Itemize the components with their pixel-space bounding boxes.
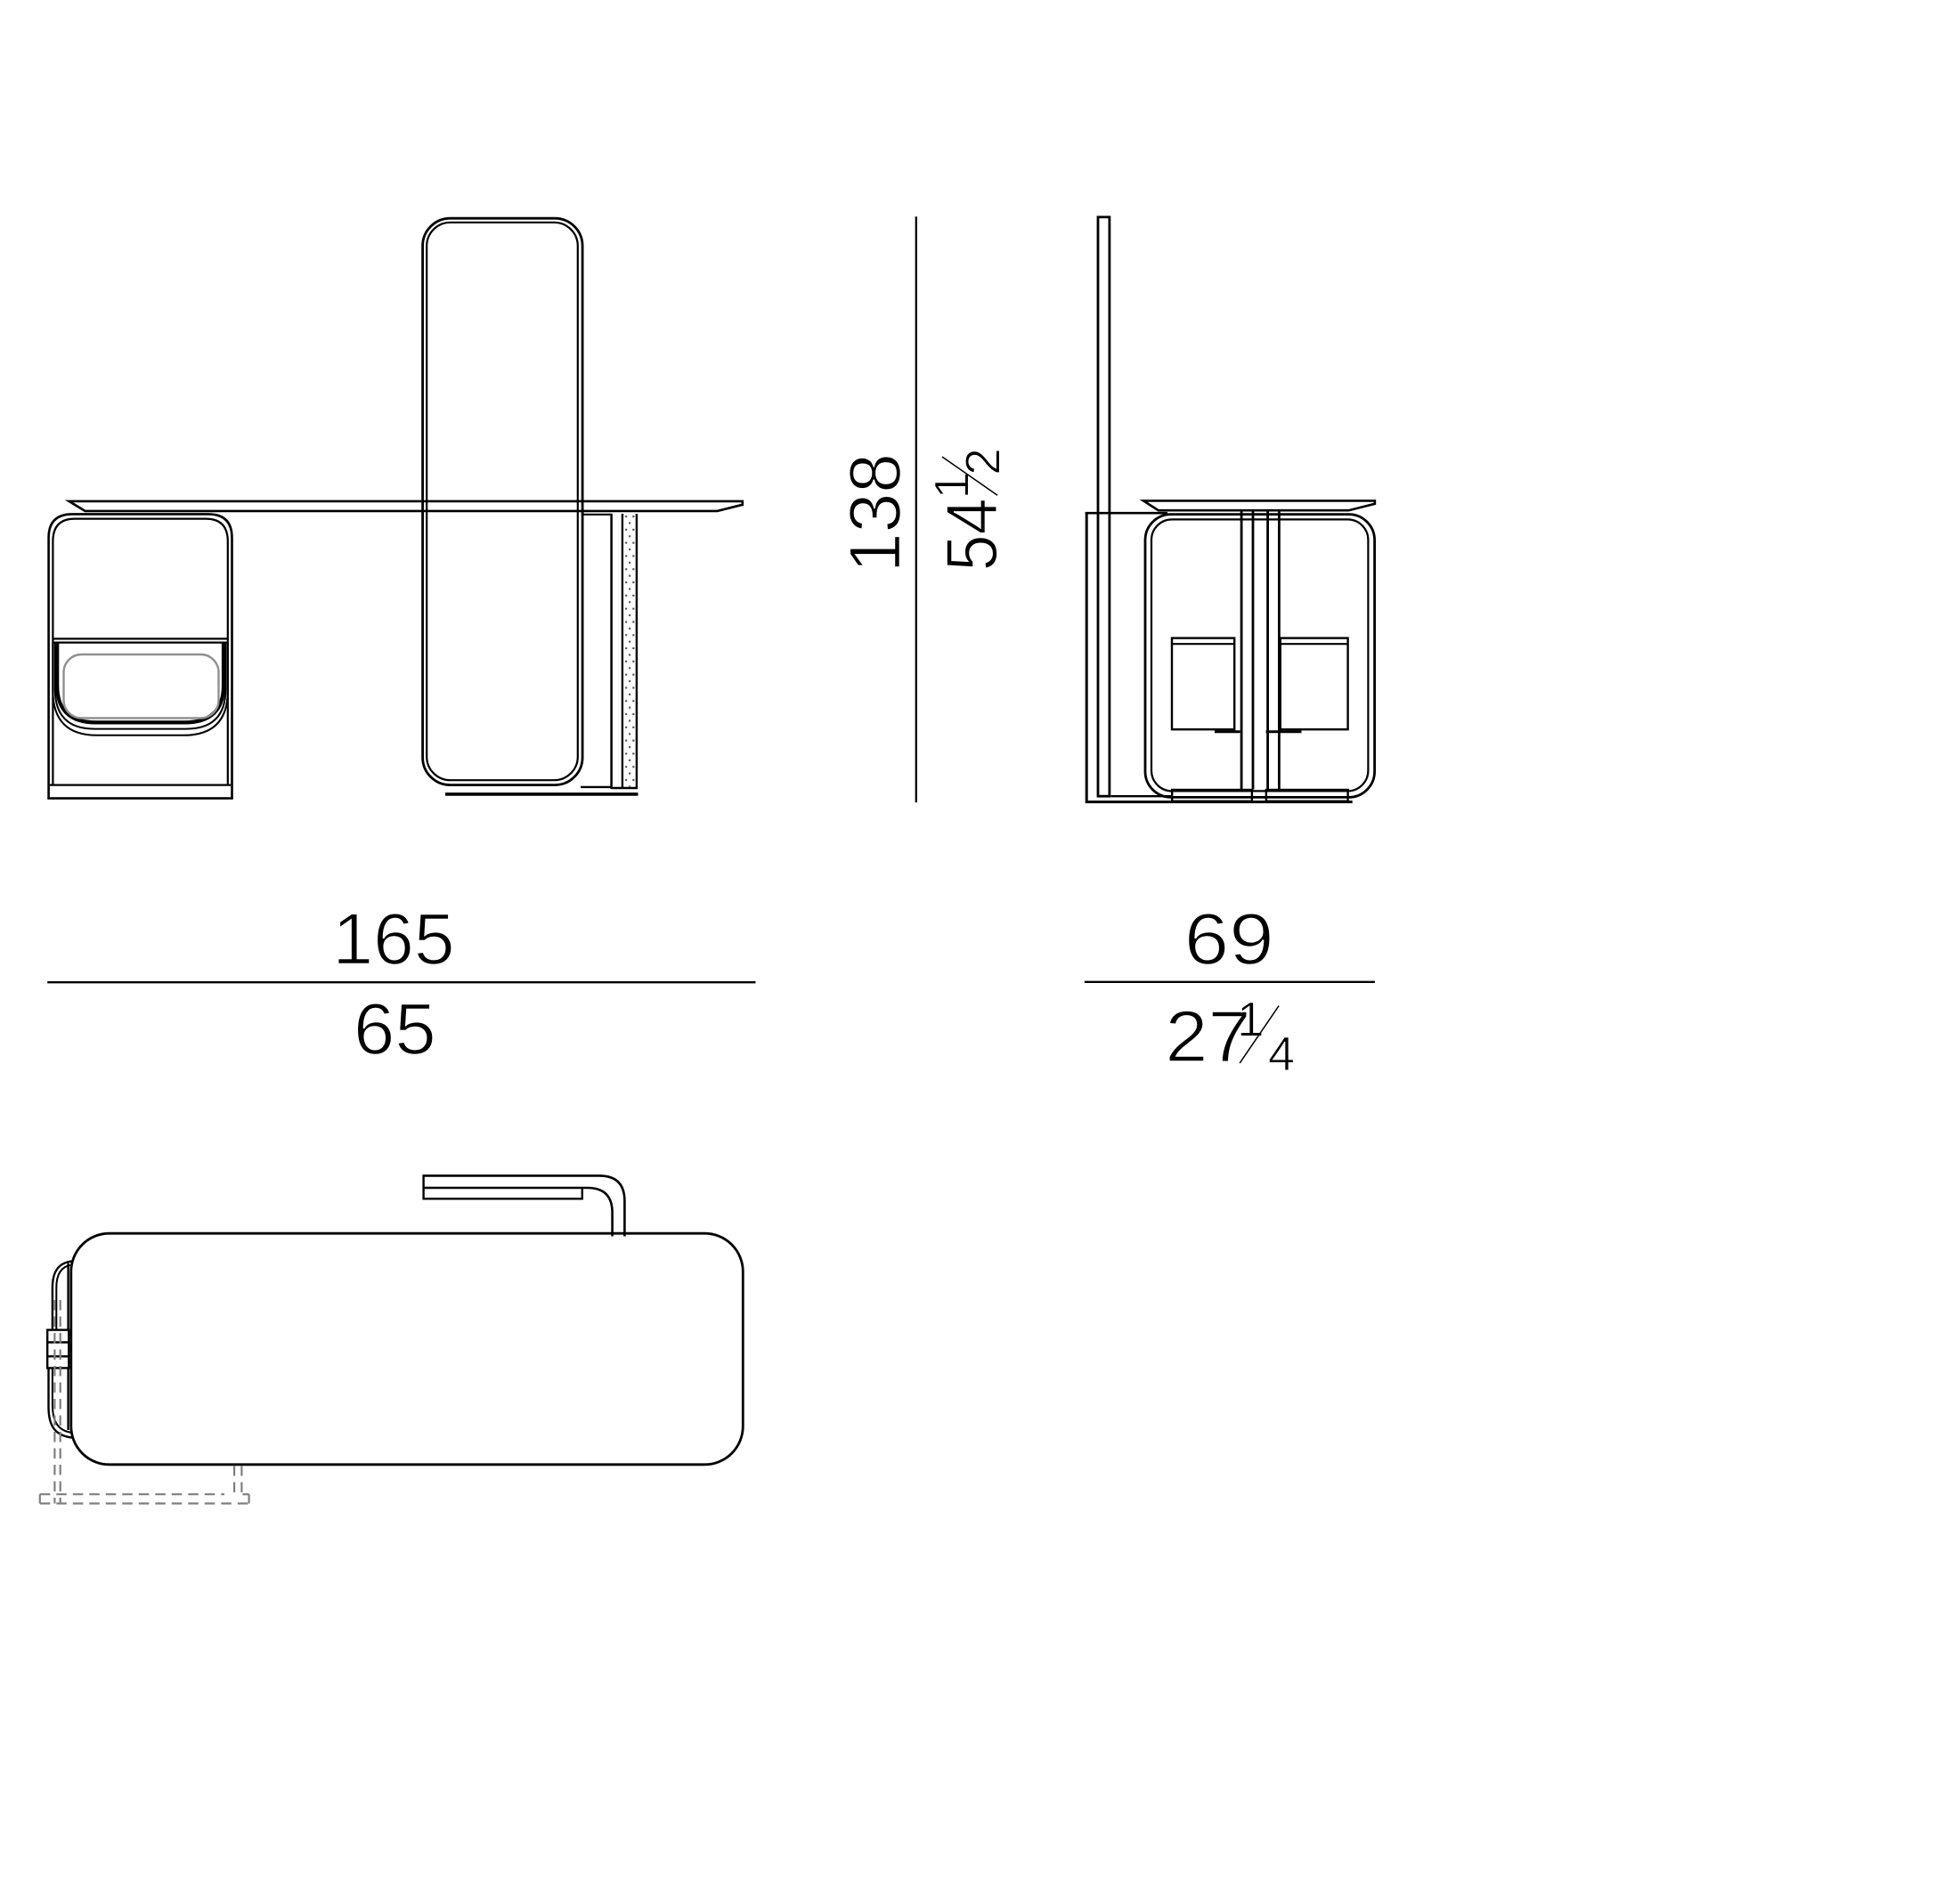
svg-text:165: 165 bbox=[332, 899, 454, 980]
svg-text:54: 54 bbox=[931, 498, 1013, 571]
svg-text:2: 2 bbox=[956, 448, 1011, 475]
svg-text:4: 4 bbox=[1268, 1028, 1295, 1081]
svg-text:138: 138 bbox=[835, 453, 916, 573]
svg-text:69: 69 bbox=[1184, 899, 1274, 980]
svg-text:65: 65 bbox=[354, 989, 436, 1070]
svg-text:1: 1 bbox=[1237, 991, 1265, 1046]
